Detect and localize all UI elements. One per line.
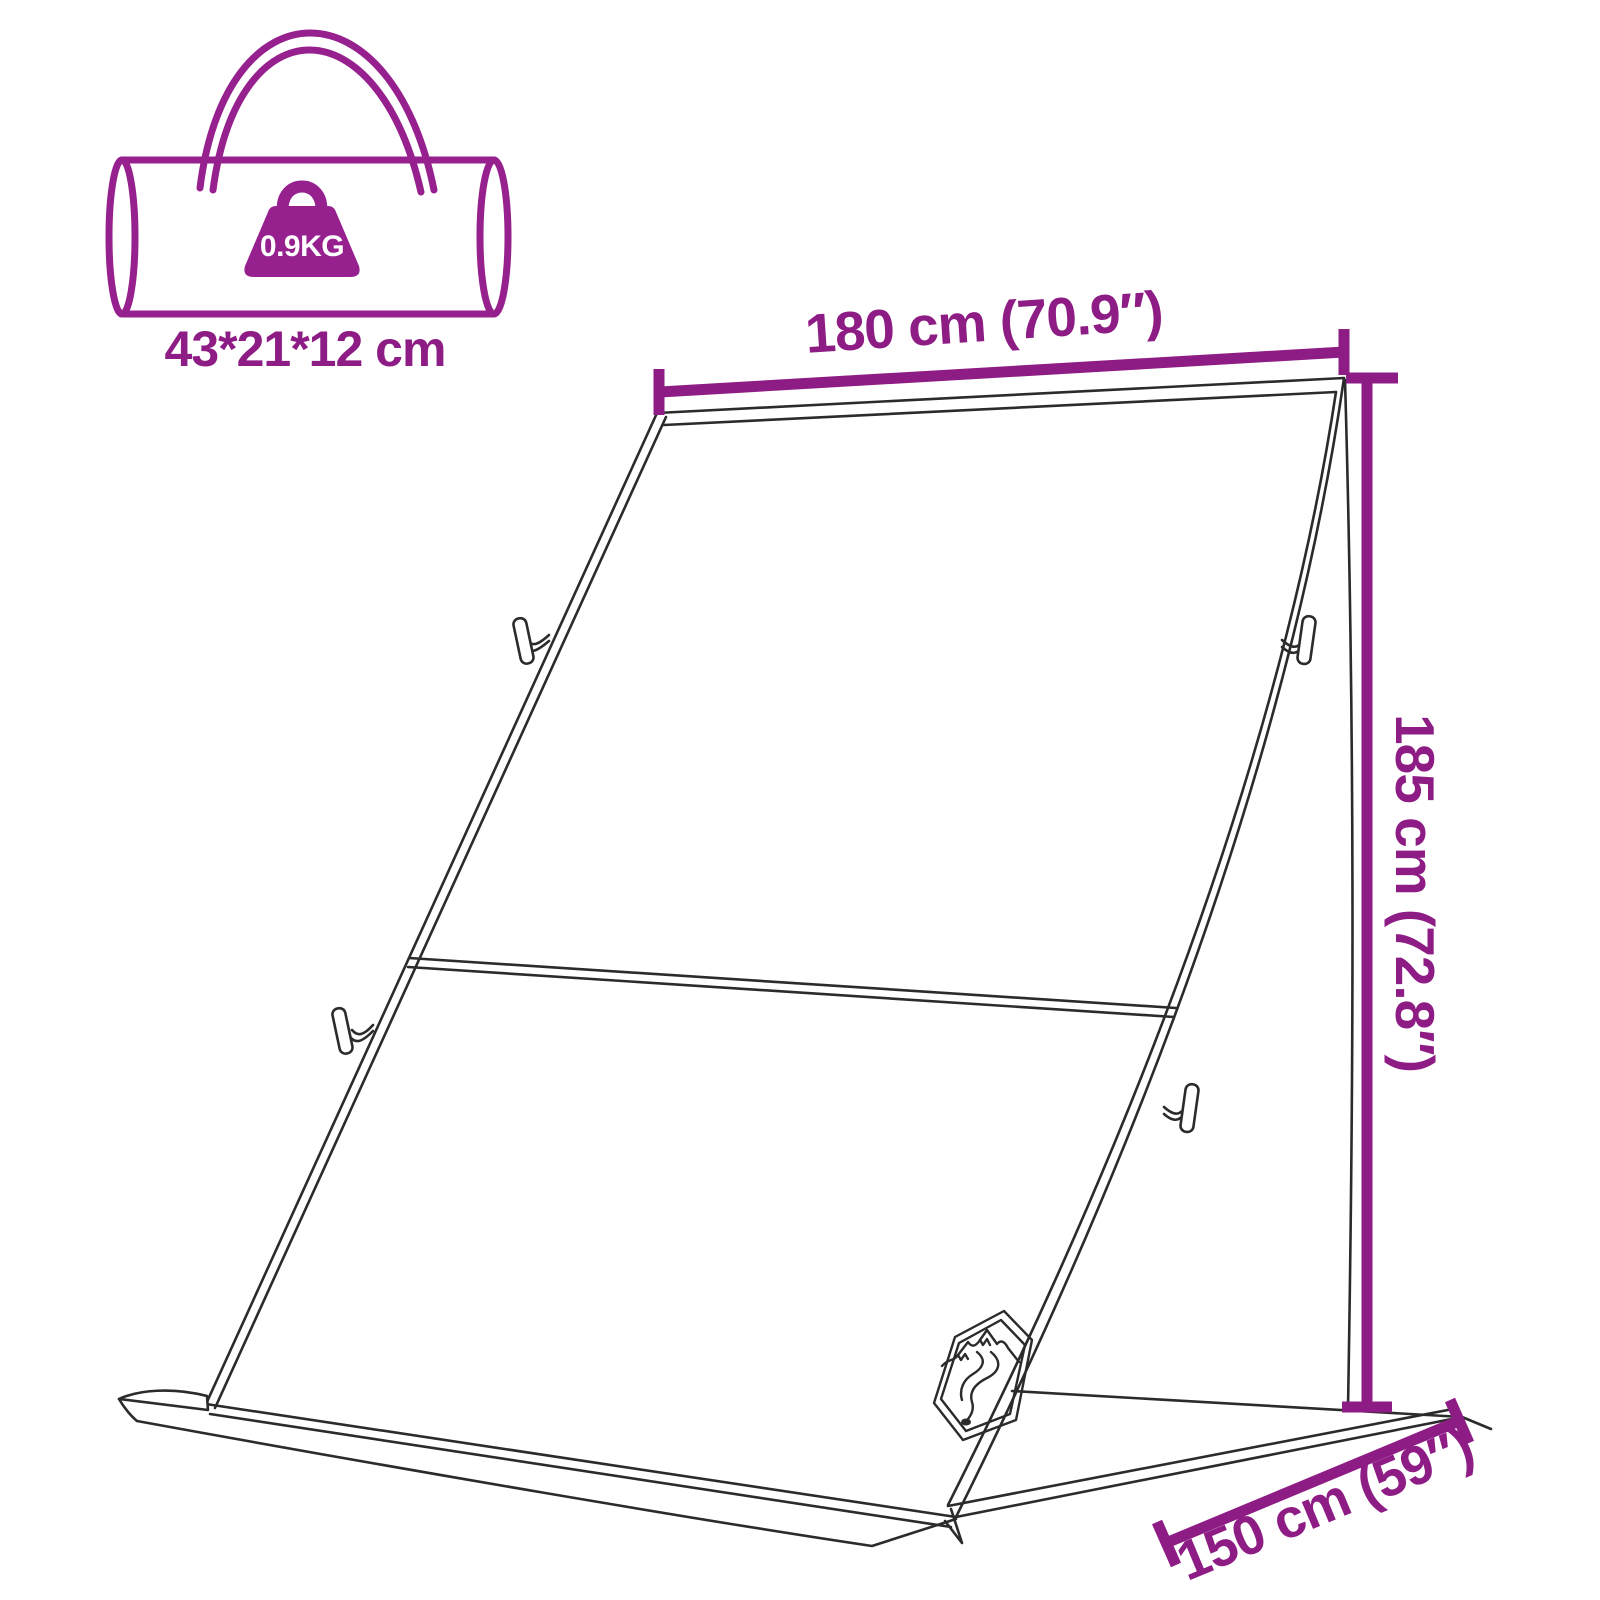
panel-right-sleeve-inner xyxy=(948,392,1336,1505)
width-dimension-line xyxy=(660,352,1344,392)
panel-middle-seam-a xyxy=(409,958,1176,1008)
toggle-bar xyxy=(1297,615,1317,664)
toggle-bar xyxy=(512,617,534,665)
ground-skirt xyxy=(119,1399,956,1546)
dimension-label-texts: 180 cm (70.9″) 185 cm (72.8″) 150 cm (59… xyxy=(803,279,1481,1592)
logo-dot xyxy=(961,1419,971,1426)
windbreak-line-drawing xyxy=(119,378,1491,1546)
toggle-clip-icon-left-lower xyxy=(331,1007,373,1055)
groundsheet-back-edge xyxy=(1012,1391,1462,1417)
weight-label: 0.9KG xyxy=(260,230,344,263)
panel-bottom-hem-inner xyxy=(210,1414,951,1527)
bag-end-left xyxy=(109,160,135,314)
toggle-bar xyxy=(1180,1083,1200,1132)
rear-pole xyxy=(1345,380,1353,1408)
weight-icon: 0.9KG xyxy=(244,187,359,278)
bag-size-label: 43*21*12 cm xyxy=(165,321,446,377)
panel-left-edge-outer xyxy=(206,413,657,1404)
depth-dimension-label: 150 cm (59″) xyxy=(1168,1415,1482,1593)
panel-left-edge-inner xyxy=(215,417,666,1408)
ground-flap-left xyxy=(119,1391,208,1410)
bag-end-right xyxy=(480,160,508,314)
toggle-clip-icon-left-upper xyxy=(512,617,549,665)
sleeve-ground-tip xyxy=(945,1509,962,1543)
product-dimension-diagram-page: 0.9KG 43*21*12 cm xyxy=(0,0,1600,1600)
toggle-clip-icon-right-lower xyxy=(1164,1083,1199,1132)
height-dimension-label: 185 cm (72.8″) xyxy=(1384,714,1446,1072)
panel-right-sleeve-outer xyxy=(956,378,1344,1517)
width-dimension-label: 180 cm (70.9″) xyxy=(803,279,1164,365)
product-dimension-diagram: 0.9KG 43*21*12 cm xyxy=(0,0,1600,1600)
mountain-river-logo-icon xyxy=(934,1311,1032,1440)
toggle-bar xyxy=(331,1007,353,1055)
panel-middle-seam-b xyxy=(408,967,1174,1017)
